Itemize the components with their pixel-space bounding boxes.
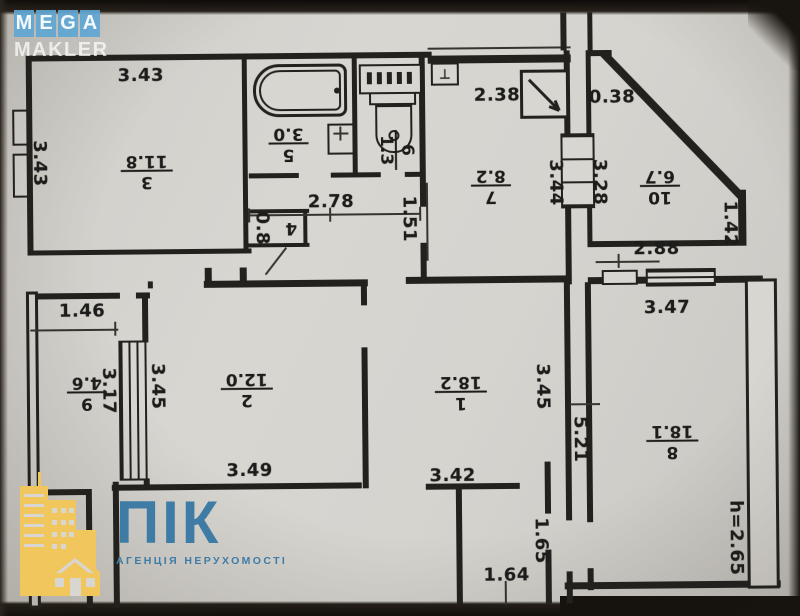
wall-segment: 11.8 — [121, 151, 173, 172]
window-symbol — [118, 340, 147, 480]
dimension-label: 3.28 — [589, 159, 610, 206]
dimension-label: 2.78 — [308, 191, 355, 212]
dimension-label: 3.17 — [98, 367, 119, 414]
pik-building-icon — [8, 472, 108, 602]
bathtub-drain — [334, 88, 340, 94]
room-label-10: 106.7 — [640, 166, 680, 205]
wall-segment — [242, 53, 249, 253]
wall-segment — [142, 292, 148, 342]
wall-segment — [30, 329, 118, 332]
mega-logo: MEGA — [14, 10, 109, 37]
dimension-label: 2.88 — [633, 238, 680, 259]
wall-segment — [205, 268, 212, 282]
sink-icon — [333, 132, 348, 134]
wall-segment: 7 — [485, 187, 497, 205]
wall-segment — [456, 489, 463, 604]
dimension-label: 5.21 — [570, 416, 591, 463]
mega-makler-watermark: MEGA MAKLER — [14, 10, 109, 62]
wall-segment: 6.7 — [640, 166, 680, 187]
window-symbol — [646, 268, 716, 287]
dimension-label: 3.42 — [429, 465, 476, 486]
wall-segment — [596, 261, 660, 264]
wall-segment: 1 — [455, 393, 467, 411]
labels-layer: 311.853.061.3478.2106.794.6212.0118.2818… — [0, 0, 797, 4]
room-label-5: 53.0 — [268, 124, 308, 163]
dimension-label: 3.43 — [118, 65, 165, 86]
wall-segment — [560, 12, 566, 50]
wall-segment — [148, 281, 153, 288]
wall-segment: 8 — [666, 442, 678, 460]
dimension-label: 1.51 — [398, 196, 419, 243]
dimension-label: 0.8 — [252, 212, 273, 246]
wall-segment: 8.2 — [471, 166, 511, 187]
wall-segment: 12.0 — [221, 369, 273, 390]
wall-segment — [570, 403, 600, 405]
dimension-label: 3.45 — [147, 363, 168, 410]
wall-segment — [28, 293, 120, 300]
wall-segment: 18.2 — [435, 372, 487, 393]
wall-segment: 3 — [141, 172, 153, 190]
wall-segment: 2 — [241, 390, 253, 408]
room-label-4: 4 — [285, 218, 297, 236]
wall-segment — [114, 322, 116, 336]
room-label-6: 61.3 — [376, 130, 415, 170]
dimension-label: 3.43 — [29, 140, 50, 187]
floorplan-photo: ⊥ 311.853.061.3478.2106.794.6212.0118.28… — [0, 0, 800, 616]
wall-segment — [359, 172, 381, 177]
window-symbol — [602, 270, 638, 285]
wall-segment — [587, 12, 592, 56]
dimension-label: 1.46 — [59, 300, 106, 321]
wall-segment — [567, 571, 573, 603]
dimension-label: 1.65 — [531, 517, 552, 564]
outer-double-wall — [745, 278, 780, 588]
wall-segment — [565, 206, 572, 284]
pik-logo-text: ПІК — [116, 494, 287, 551]
room-label-2: 212.0 — [221, 369, 273, 408]
wall-segment — [352, 55, 358, 175]
dimension-label: 1.64 — [483, 564, 530, 585]
wall-segment — [249, 213, 421, 217]
wall-segment — [618, 254, 620, 268]
pik-watermark: ПІК АГЕНЦІЯ НЕРУХОМОСТІ — [8, 472, 287, 602]
wall-segment — [545, 462, 551, 514]
door-swing — [265, 247, 287, 275]
wall-segment — [249, 173, 299, 178]
pik-tagline: АГЕНЦІЯ НЕРУХОМОСТІ — [116, 555, 287, 567]
wall-segment: 18.1 — [646, 421, 698, 442]
dimension-label: 0.38 — [589, 86, 636, 107]
wall-segment — [426, 183, 429, 261]
dimension-label: 3.45 — [532, 363, 553, 410]
radiator-icon — [367, 72, 414, 84]
dimension-label: h=2.65 — [725, 500, 747, 576]
wall-segment — [240, 267, 247, 281]
dimension-label: 3.47 — [644, 297, 691, 318]
room-label-8: 818.1 — [646, 421, 698, 460]
wall-segment: 5 — [283, 145, 295, 163]
wall-segment — [28, 248, 252, 255]
bathtub-icon — [259, 70, 341, 112]
walls-layer: ⊥ — [0, 0, 797, 4]
wall-segment: 1.3 — [376, 130, 397, 170]
wall-segment — [361, 347, 368, 488]
dimension-label: 2.38 — [474, 84, 521, 105]
mega-logo-subtitle: MAKLER — [14, 39, 109, 62]
mega-logo-letter: E — [36, 10, 56, 37]
dimension-label: 1.42 — [720, 201, 741, 248]
toilet-icon — [369, 92, 416, 105]
lightning-icon — [523, 72, 566, 115]
wall-segment — [248, 208, 250, 222]
wall-segment: 3.0 — [268, 124, 308, 145]
wall-segment — [587, 206, 592, 247]
wall-segment — [588, 568, 594, 590]
doorbell-icon: ⊥ — [431, 62, 459, 85]
wall-segment — [529, 79, 559, 110]
electrical-panel-icon — [520, 69, 569, 118]
wall-segment — [428, 46, 571, 49]
dimension-label: 3.44 — [545, 159, 566, 206]
room-label-1: 118.2 — [435, 372, 487, 411]
window-symbol — [13, 154, 29, 198]
wall-segment — [406, 275, 571, 284]
mega-logo-letter: M — [14, 10, 34, 37]
window-symbol — [12, 110, 28, 146]
wall-segment: 4 — [285, 218, 297, 236]
wall-segment — [361, 281, 367, 305]
wall-segment — [204, 279, 368, 288]
mega-logo-letter: A — [80, 10, 100, 37]
room-label-7: 78.2 — [471, 166, 511, 205]
wall-segment: 6 — [397, 144, 415, 156]
mega-logo-letter: G — [58, 10, 78, 37]
wall-segment: 10 — [648, 187, 672, 205]
wall-segment — [566, 485, 572, 520]
room-label-3: 311.8 — [121, 151, 173, 190]
wall-segment: 9 — [81, 393, 93, 411]
